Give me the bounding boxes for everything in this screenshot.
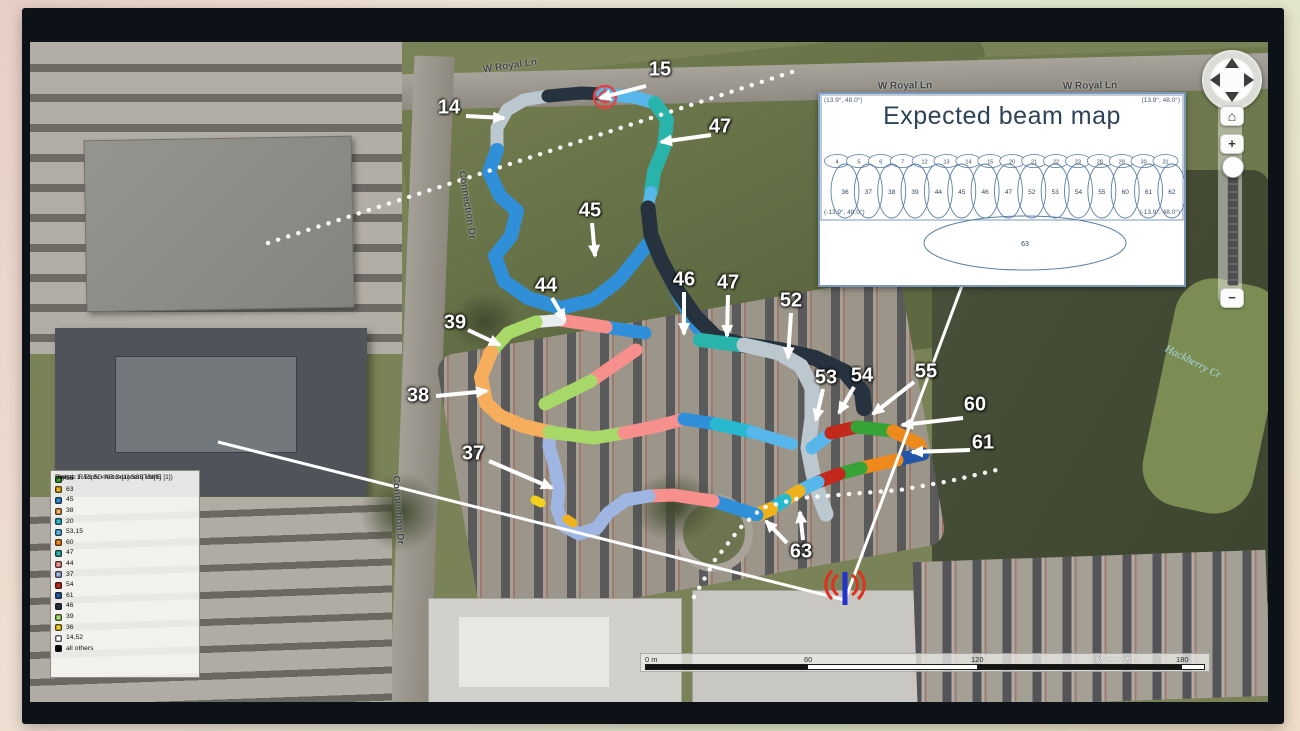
legend-entry-label: 61	[66, 592, 74, 600]
svg-text:31: 31	[1162, 160, 1168, 166]
beam-label-39: 39	[444, 312, 466, 335]
beam-label-60: 60	[964, 394, 986, 417]
svg-text:14: 14	[965, 160, 971, 166]
legend-unit-line: Unit:	[55, 474, 68, 482]
legend-entries: 556345382053,1560474437546146393614,52al…	[55, 474, 195, 654]
beam-label-54: 54	[851, 365, 873, 388]
scale-bar-label-120: 120	[971, 655, 984, 664]
legend-entry-label: 14,52	[66, 634, 83, 642]
legend-color-swatch	[55, 603, 62, 610]
pan-compass[interactable]	[1202, 50, 1262, 110]
legend-entry-53-15: 53,15	[55, 527, 195, 538]
svg-text:47: 47	[1005, 189, 1013, 196]
legend-entry-61: 61	[55, 591, 195, 602]
beam-label-37: 37	[462, 443, 484, 466]
legend-entry-60: 60	[55, 538, 195, 549]
beam-label-55: 55	[915, 361, 937, 384]
svg-text:45: 45	[958, 189, 966, 196]
svg-text:36: 36	[841, 189, 849, 196]
legend-color-swatch	[55, 508, 62, 515]
svg-text:54: 54	[1075, 189, 1083, 196]
legend-entry-label: 45	[66, 496, 74, 504]
legend-color-swatch	[55, 497, 62, 504]
legend-entry-label: 37	[66, 571, 74, 579]
legend-entry-39: 39	[55, 612, 195, 623]
beam-label-63: 63	[790, 541, 812, 564]
legend-entry-label: 47	[66, 549, 74, 557]
expected-beam-map-panel: 4567121314152021222328293031363738394445…	[818, 92, 1186, 287]
legend-entry-47: 47	[55, 548, 195, 559]
legend-entry-label: 53,15	[66, 528, 83, 536]
legend-entry-label: 63	[66, 486, 74, 494]
beam-label-14: 14	[438, 97, 460, 120]
scale-bar-segment	[645, 664, 807, 670]
beam-label-15: 15	[649, 59, 671, 82]
beam-label-45: 45	[579, 200, 601, 223]
beam-map-title: Expected beam map	[820, 102, 1184, 131]
signal-legend: Signal: 1. TopN <Auto>[1] SSB idx[1] Dev…	[50, 470, 200, 678]
pan-left-icon[interactable]	[1210, 73, 1220, 87]
satellite-map[interactable]: W Royal LnW Royal LnW Royal LnConnection…	[30, 42, 1268, 702]
legend-entry-label: 54	[66, 581, 74, 589]
legend-entry-37: 37	[55, 569, 195, 580]
scale-bar-segment	[978, 664, 1181, 670]
home-button[interactable]: ⌂	[1220, 106, 1244, 126]
legend-entry-36: 36	[55, 622, 195, 633]
svg-text:13: 13	[943, 160, 949, 166]
pan-right-icon[interactable]	[1244, 73, 1254, 87]
legend-color-swatch	[55, 550, 62, 557]
svg-text:63: 63	[1021, 241, 1029, 248]
svg-text:62: 62	[1168, 189, 1176, 196]
legend-color-swatch	[55, 539, 62, 546]
svg-text:37: 37	[865, 189, 873, 196]
pan-down-icon[interactable]	[1225, 92, 1239, 102]
scale-bar-label-60: 60	[804, 655, 812, 664]
beam-map-corner-bottom-left: (-13.9°, 48.0°)	[824, 209, 865, 216]
scale-bar-segment	[1181, 664, 1205, 670]
legend-color-swatch	[55, 582, 62, 589]
beam-map-corner-top-left: (13.9°, 48.0°)	[824, 97, 862, 104]
legend-entry-all-others: all others	[55, 644, 195, 655]
svg-text:38: 38	[888, 189, 896, 196]
beam-label-44: 44	[535, 275, 557, 298]
beam-label-46: 46	[673, 269, 695, 292]
legend-color-swatch	[55, 635, 62, 642]
beam-label-38: 38	[407, 385, 429, 408]
svg-text:46: 46	[981, 189, 989, 196]
svg-text:6: 6	[879, 160, 882, 166]
svg-text:60: 60	[1122, 189, 1130, 196]
zoom-out-button[interactable]: −	[1220, 288, 1244, 308]
legend-entry-label: 44	[66, 560, 74, 568]
svg-text:53: 53	[1052, 189, 1060, 196]
svg-text:12: 12	[922, 160, 928, 166]
legend-color-swatch	[55, 571, 62, 578]
beam-label-61: 61	[972, 432, 994, 455]
pan-up-icon[interactable]	[1225, 58, 1239, 68]
legend-entry-54: 54	[55, 580, 195, 591]
legend-entry-14-52: 14,52	[55, 633, 195, 644]
legend-color-swatch	[55, 614, 62, 621]
legend-entry-44: 44	[55, 559, 195, 570]
beam-map-corner-bottom-right: (-13.9°, 48.0°)	[1139, 209, 1180, 216]
zoom-slider-handle[interactable]	[1222, 156, 1244, 178]
legend-entry-45: 45	[55, 495, 195, 506]
scale-bar-label-0-m: 0 m	[645, 655, 658, 664]
legend-entry-label: 60	[66, 539, 74, 547]
svg-text:5: 5	[857, 160, 860, 166]
scale-bar-label-180: 180	[1176, 655, 1189, 664]
legend-color-swatch	[55, 486, 62, 493]
svg-text:39: 39	[911, 189, 919, 196]
legend-color-swatch	[55, 561, 62, 568]
legend-color-swatch	[55, 624, 62, 631]
scale-bar-segment	[807, 664, 978, 670]
legend-entry-63: 63	[55, 485, 195, 496]
slide-background: W Royal LnW Royal LnW Royal LnConnection…	[22, 8, 1284, 724]
legend-color-swatch	[55, 518, 62, 525]
zoom-in-button[interactable]: +	[1220, 134, 1244, 154]
beam-map-corner-top-right: (13.9°, 48.0°)	[1142, 97, 1180, 104]
svg-text:55: 55	[1098, 189, 1106, 196]
legend-color-swatch	[55, 645, 62, 652]
legend-entry-label: all others	[66, 645, 94, 653]
svg-text:44: 44	[935, 189, 943, 196]
svg-text:4: 4	[835, 160, 838, 166]
legend-color-swatch	[55, 529, 62, 536]
zoom-slider-track[interactable]	[1227, 160, 1239, 286]
beam-label-47: 47	[717, 272, 739, 295]
map-scale-bar: Microsoft 0 m60120180	[640, 653, 1210, 672]
legend-entry-46: 46	[55, 601, 195, 612]
legend-entry-label: 46	[66, 602, 74, 610]
legend-entry-20: 20	[55, 516, 195, 527]
legend-device-line: Device: R&S 5G NR Scanner (TSME [1])	[55, 474, 173, 482]
legend-color-swatch	[55, 592, 62, 599]
legend-entry-label: 39	[66, 613, 74, 621]
legend-entry-label: 38	[66, 507, 74, 515]
svg-text:61: 61	[1145, 189, 1153, 196]
beam-label-47: 47	[709, 116, 731, 139]
beam-label-52: 52	[780, 290, 802, 313]
svg-text:52: 52	[1028, 189, 1036, 196]
beam-label-53: 53	[815, 367, 837, 390]
legend-entry-38: 38	[55, 506, 195, 517]
legend-entry-label: 36	[66, 624, 74, 632]
svg-text:7: 7	[901, 160, 904, 166]
legend-entry-label: 20	[66, 518, 74, 526]
